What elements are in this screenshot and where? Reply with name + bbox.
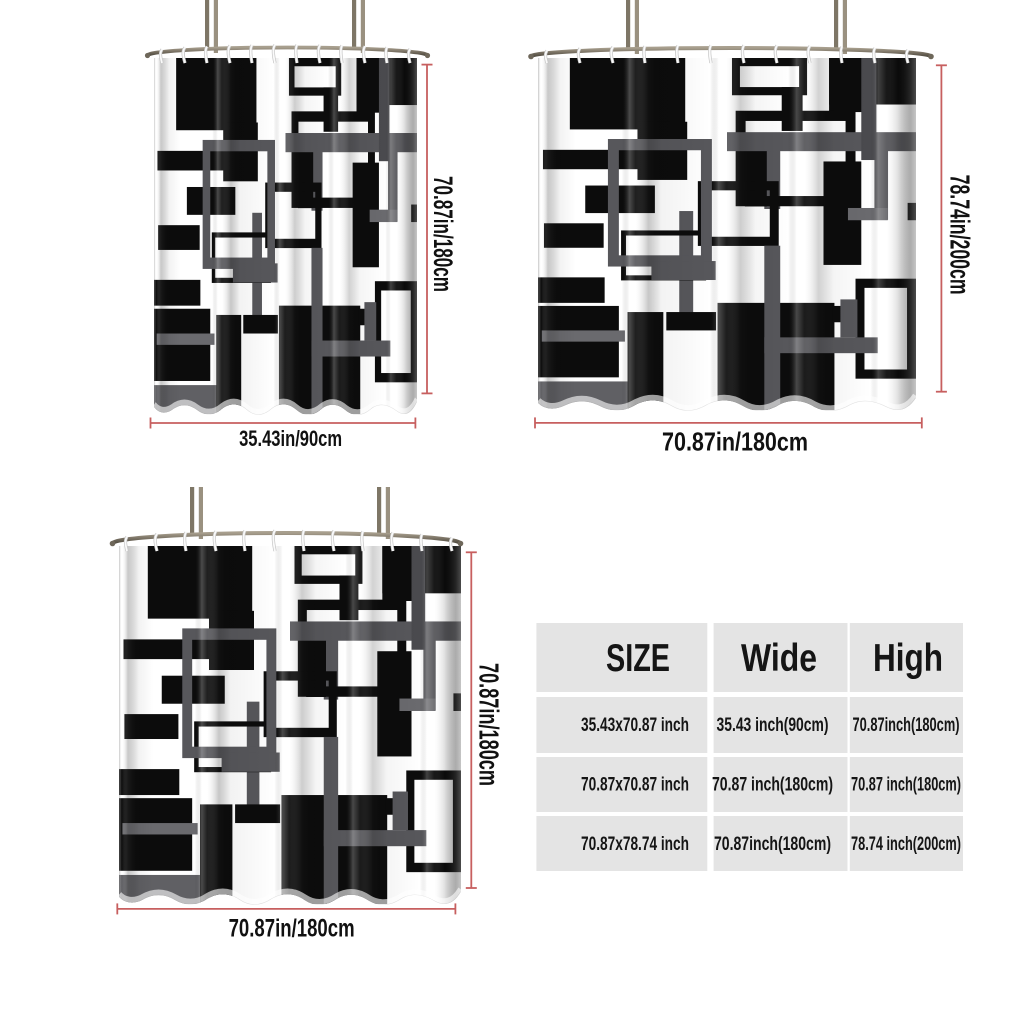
svg-text:70.87 inch(180cm): 70.87 inch(180cm) bbox=[851, 775, 961, 796]
svg-text:70.87in/180cm: 70.87in/180cm bbox=[662, 427, 808, 457]
svg-text:70.87inch(180cm): 70.87inch(180cm) bbox=[853, 715, 960, 736]
svg-text:70.87x78.74 inch: 70.87x78.74 inch bbox=[581, 834, 689, 855]
svg-text:70.87in/180cm: 70.87in/180cm bbox=[428, 176, 458, 292]
svg-text:78.74in/200cm: 78.74in/200cm bbox=[945, 175, 976, 295]
svg-text:35.43in/90cm: 35.43in/90cm bbox=[239, 426, 342, 451]
svg-text:70.87in/180cm: 70.87in/180cm bbox=[229, 915, 355, 943]
svg-text:70.87inch(180cm): 70.87inch(180cm) bbox=[714, 834, 831, 855]
svg-text:35.43x70.87 inch: 35.43x70.87 inch bbox=[581, 715, 689, 736]
svg-text:78.74 inch(200cm): 78.74 inch(200cm) bbox=[851, 834, 961, 855]
svg-text:SIZE: SIZE bbox=[606, 637, 670, 680]
svg-text:70.87in/180cm: 70.87in/180cm bbox=[474, 663, 505, 786]
svg-text:70.87 inch(180cm): 70.87 inch(180cm) bbox=[712, 775, 833, 796]
svg-text:35.43 inch(90cm): 35.43 inch(90cm) bbox=[717, 715, 829, 736]
svg-text:High: High bbox=[873, 637, 943, 680]
svg-text:70.87x70.87 inch: 70.87x70.87 inch bbox=[581, 775, 689, 796]
svg-text:Wide: Wide bbox=[741, 637, 817, 680]
